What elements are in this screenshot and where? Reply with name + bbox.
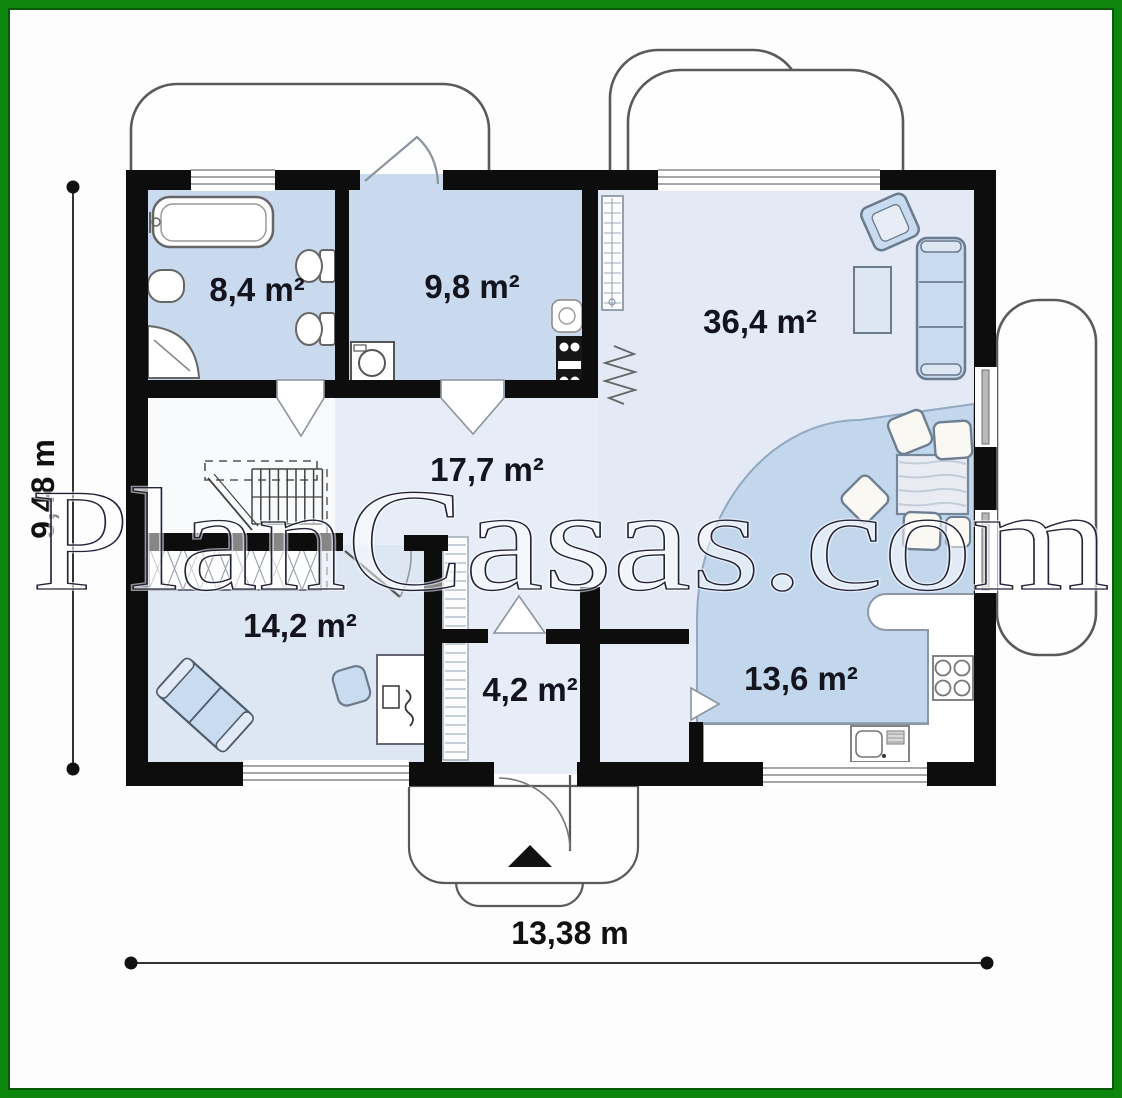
svg-text:13,6 m²: 13,6 m² xyxy=(744,660,858,697)
svg-text:4,2 m²: 4,2 m² xyxy=(482,671,577,708)
svg-text:8,4 m²: 8,4 m² xyxy=(209,271,304,308)
svg-text:13,38 m: 13,38 m xyxy=(511,915,628,951)
svg-text:9,8 m²: 9,8 m² xyxy=(424,268,519,305)
svg-text:PlanCasas.com: PlanCasas.com xyxy=(31,460,1110,622)
svg-text:36,4 m²: 36,4 m² xyxy=(703,303,817,340)
